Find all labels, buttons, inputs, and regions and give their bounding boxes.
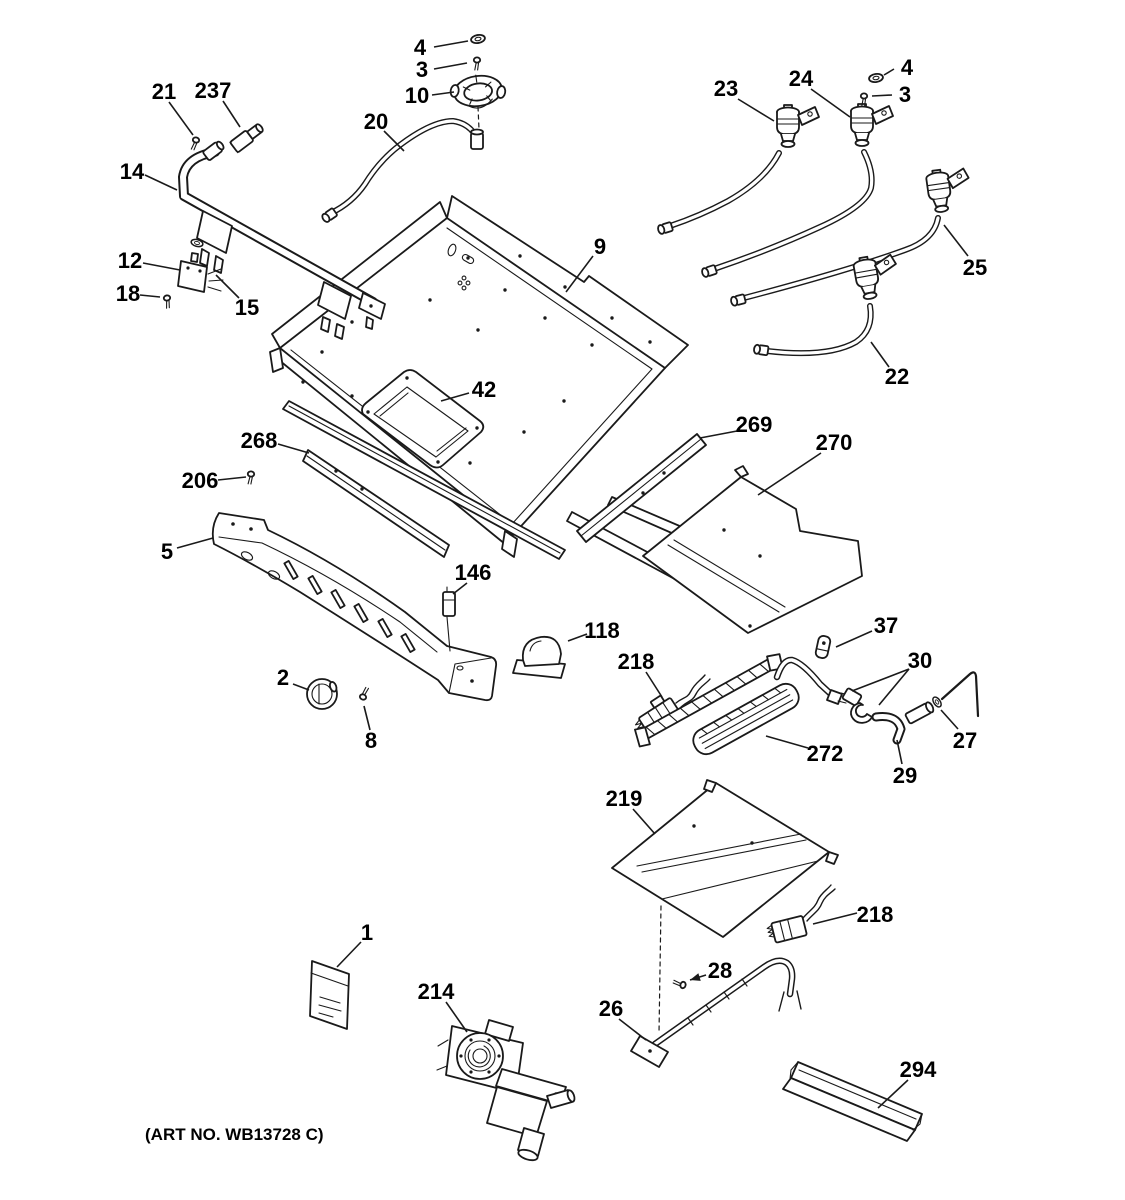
clip-146 [443,587,455,616]
part-number-label: 146 [455,560,492,585]
part-number-label: 26 [599,996,623,1021]
parts-diagram-page: 4310202123714121815923244325224226826927… [0,0,1125,1200]
part-number-label: 1 [361,920,373,945]
part-number-label: 237 [195,78,232,103]
part-number-label: 25 [963,255,987,280]
part-number-label: 4 [901,55,914,80]
part-number-label: 10 [405,83,429,108]
part-number-label: 272 [807,741,844,766]
part-number-label: 3 [416,57,428,82]
part-number-label: 269 [736,412,773,437]
parts-diagram: 4310202123714121815923244325224226826927… [0,0,1125,1200]
part-number-label: 22 [885,364,909,389]
part-number-label: 270 [816,430,853,455]
part-number-label: 9 [594,234,606,259]
part-number-label: 15 [235,295,259,320]
part-number-label: 30 [908,648,932,673]
part-number-label: 218 [618,649,655,674]
part-number-label: 206 [182,468,219,493]
part-number-label: 27 [953,728,977,753]
part-number-label: 18 [116,281,140,306]
part-number-label: 294 [900,1057,937,1082]
part-number-label: 28 [708,958,732,983]
part-number-label: 8 [365,728,377,753]
part-number-label: 5 [161,539,173,564]
part-number-label: 29 [893,763,917,788]
part-number-label: 219 [606,786,643,811]
part-number-label: 24 [789,66,814,91]
art-number: (ART NO. WB13728 C) [145,1125,324,1144]
burner-knob-2 [307,679,338,709]
tube-fitting [471,130,483,150]
part-number-label: 218 [857,902,894,927]
part-number-label: 42 [472,377,496,402]
part-number-label: 214 [418,979,455,1004]
part-number-label: 21 [152,79,176,104]
part-number-label: 2 [277,665,289,690]
literature-pack [310,961,349,1029]
part-number-label: 37 [874,613,898,638]
part-number-label: 12 [118,248,142,273]
part-number-label: 118 [584,618,620,643]
part-number-label: 23 [714,76,738,101]
part-number-label: 268 [241,428,278,453]
part-number-label: 20 [364,109,388,134]
part-number-label: 3 [899,82,911,107]
leader-line [872,95,892,96]
part-number-label: 14 [120,159,145,184]
